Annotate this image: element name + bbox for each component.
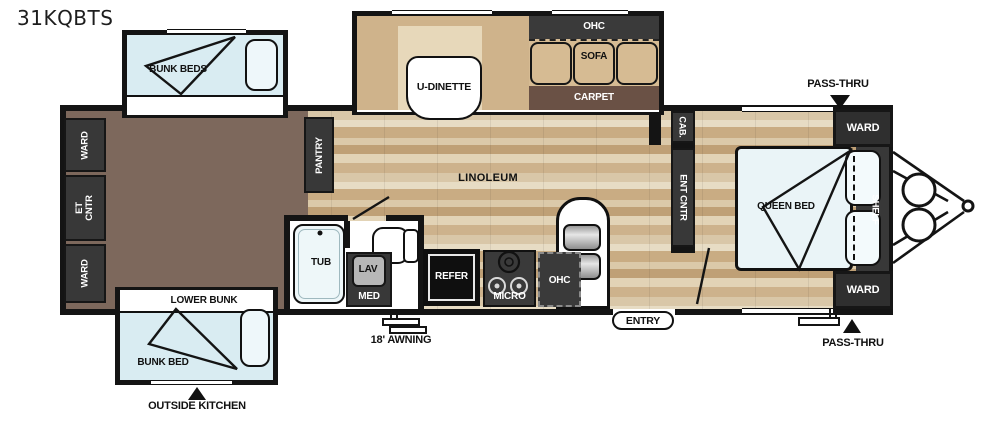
ent-cntr-label: ENT CNTR: [678, 174, 689, 220]
pantry-label: PANTRY: [314, 137, 325, 174]
entry-label-pill: ENTRY: [612, 311, 674, 330]
window: [552, 10, 628, 15]
outside-kitchen-arrow-icon: [188, 387, 206, 400]
ward-left-bottom-label-wrap: WARD: [64, 244, 106, 303]
tub-label: TUB: [301, 257, 341, 268]
bathroom-wall: [284, 215, 290, 309]
window: [742, 308, 833, 314]
sofa: [529, 39, 659, 86]
linoleum-label: LINOLEUM: [438, 172, 538, 184]
ward-left-top-label-wrap: WARD: [64, 118, 106, 172]
bathroom-wall: [284, 215, 348, 221]
lower-bunk-label: LOWER BUNK: [168, 295, 240, 306]
window: [742, 106, 833, 112]
hitch-a-frame: [893, 152, 964, 263]
sofa-cushion: [573, 42, 615, 85]
et-cntr-label-wrap: ET CNTR: [64, 175, 106, 241]
u-dinette-label: U-DINETTE: [409, 81, 479, 93]
pantry-label-wrap: PANTRY: [304, 117, 334, 193]
entry-label: ENTRY: [626, 315, 660, 327]
bunk-beds-pillow: [245, 39, 278, 91]
shelf-label: SHELF: [870, 194, 881, 224]
ward-right-top-label: WARD: [833, 122, 893, 134]
window: [167, 29, 246, 34]
propane-tank: [903, 174, 935, 206]
sofa-ohc-label: OHC: [564, 21, 624, 32]
bunk-bed-label: BUNK BED: [134, 357, 192, 368]
pass-thru-bottom-label: PASS-THRU: [812, 337, 894, 349]
cab-label: CAB.: [678, 116, 688, 137]
window: [151, 380, 232, 385]
outside-kitchen-label: OUTSIDE KITCHEN: [140, 400, 254, 412]
et-cntr-label: ET CNTR: [75, 192, 95, 224]
refer-label: REFER: [423, 271, 480, 282]
micro-label: MICRO: [483, 291, 536, 302]
floorplan-canvas: 31KQBTS WARD ET CNTR WARD PANTRY BUNK BE…: [0, 0, 985, 426]
model-title: 31KQBTS: [17, 6, 113, 30]
cab-label-wrap: CAB.: [671, 111, 695, 143]
propane-tank: [903, 209, 935, 241]
window: [392, 10, 492, 15]
sofa-label: SOFA: [564, 51, 624, 62]
hitch-coupler: [963, 201, 973, 211]
ent-cntr-label-wrap: ENT CNTR: [671, 148, 695, 247]
pass-thru-top-arrow-icon: [830, 95, 850, 109]
ward-label: WARD: [79, 131, 90, 159]
med-label: MED: [349, 291, 389, 302]
kitchen-sink: [563, 224, 601, 251]
lav-label: LAV: [348, 264, 388, 275]
ent-cntr-cap: [671, 247, 695, 253]
ward-label: WARD: [79, 259, 90, 287]
queen-bed-label: QUEEN BED: [755, 201, 817, 212]
ward-right-bottom-label: WARD: [833, 284, 893, 296]
pass-thru-top-label: PASS-THRU: [797, 78, 879, 90]
shelf-label-wrap: SHELF: [862, 146, 888, 272]
bunk-beds-label: BUNK BEDS: [148, 64, 208, 75]
sofa-cushion: [616, 42, 658, 85]
pillow-dash-line: [853, 156, 855, 200]
awning-label: 18' AWNING: [356, 334, 446, 346]
kitchen-ohc-label: OHC: [538, 275, 581, 286]
pass-thru-bottom-arrow-icon: [843, 319, 861, 333]
bunk-bed-pillow: [240, 309, 270, 367]
carpet-label: CARPET: [562, 92, 626, 103]
toilet-tank: [403, 229, 419, 263]
sofa-cushion: [530, 42, 572, 85]
pillow-dash-line: [853, 216, 855, 260]
